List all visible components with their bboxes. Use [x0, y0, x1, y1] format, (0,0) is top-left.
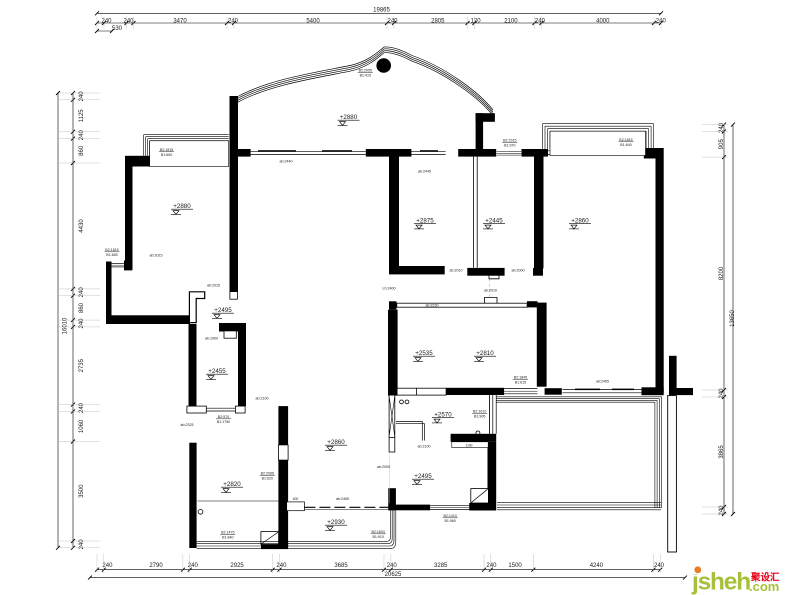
svg-text:240: 240	[123, 18, 134, 24]
svg-text:ab:2010: ab:2010	[450, 269, 463, 273]
svg-text:B2:1475: B2:1475	[221, 531, 234, 535]
svg-text:ab:2440: ab:2440	[280, 160, 293, 164]
svg-text:530: 530	[112, 26, 123, 32]
svg-text:B2:1515: B2:1515	[503, 139, 516, 143]
svg-text:905: 905	[719, 139, 725, 150]
svg-text:B2:1410: B2:1410	[444, 514, 457, 518]
svg-text:2735: 2735	[79, 358, 85, 372]
svg-text:ab:2455: ab:2455	[596, 380, 609, 384]
svg-text:3285: 3285	[434, 563, 448, 569]
svg-text:Lh:2400: Lh:2400	[383, 287, 396, 291]
svg-text:B2:1815: B2:1815	[105, 248, 118, 252]
svg-text:B1:910: B1:910	[373, 535, 384, 539]
svg-text:B1:615: B1:615	[515, 381, 526, 385]
svg-text:ab:2230: ab:2230	[426, 303, 439, 307]
svg-text:ab:1900: ab:1900	[205, 337, 218, 341]
svg-text:5400: 5400	[306, 18, 320, 24]
svg-text:ab:2010: ab:2010	[484, 289, 497, 293]
svg-text:4430: 4430	[79, 219, 85, 233]
svg-text:2925: 2925	[230, 563, 244, 569]
svg-text:B1:970: B1:970	[504, 144, 515, 148]
svg-text:860: 860	[79, 145, 85, 156]
svg-text:2805: 2805	[431, 18, 445, 24]
svg-text:240: 240	[387, 563, 398, 569]
svg-text:ab:2005: ab:2005	[377, 465, 390, 469]
svg-text:ab:2100: ab:2100	[418, 445, 431, 449]
svg-text:B1:640: B1:640	[620, 143, 631, 147]
svg-text:3865: 3865	[719, 445, 725, 459]
svg-text:8200: 8200	[719, 266, 725, 280]
svg-text:.com: .com	[749, 579, 779, 594]
svg-text:B1:840: B1:840	[222, 536, 233, 540]
svg-text:ab:2100: ab:2100	[256, 397, 269, 401]
svg-text:400: 400	[293, 497, 299, 501]
svg-text:240: 240	[102, 563, 113, 569]
svg-text:B2:2055: B2:2055	[359, 69, 372, 73]
svg-text:B1:650: B1:650	[106, 253, 117, 257]
svg-text:B1:415: B1:415	[360, 74, 371, 78]
svg-text:B2:1845: B2:1845	[514, 376, 527, 380]
svg-text:B2:1815: B2:1815	[160, 148, 173, 152]
svg-text:240: 240	[387, 18, 398, 24]
svg-text:4000: 4000	[596, 18, 610, 24]
svg-text:B1:905: B1:905	[474, 415, 485, 419]
svg-text:4240: 4240	[590, 563, 604, 569]
svg-text:B2:1603: B2:1603	[372, 530, 385, 534]
svg-text:240: 240	[276, 563, 287, 569]
svg-text:3470: 3470	[173, 18, 187, 24]
svg-text:16010: 16010	[63, 317, 69, 334]
svg-text:240: 240	[101, 18, 112, 24]
svg-text:ab:2325: ab:2325	[181, 423, 194, 427]
svg-text:B2:1815: B2:1815	[619, 138, 632, 142]
svg-text:ab:2465: ab:2465	[336, 497, 349, 501]
svg-text:1100: 1100	[466, 443, 473, 447]
svg-text:20625: 20625	[385, 572, 402, 578]
svg-text:1125: 1125	[79, 109, 85, 123]
svg-text:ab:2000: ab:2000	[512, 269, 525, 273]
svg-text:3685: 3685	[334, 563, 348, 569]
svg-text:ab:2445: ab:2445	[418, 170, 431, 174]
svg-text:ab:2015: ab:2015	[150, 254, 163, 258]
svg-text:120: 120	[471, 18, 482, 24]
svg-text:B1:620: B1:620	[262, 477, 273, 481]
svg-text:ab:2015: ab:2015	[207, 284, 220, 288]
svg-text:860: 860	[79, 302, 85, 313]
svg-text:240: 240	[228, 18, 239, 24]
svg-text:3500: 3500	[79, 484, 85, 498]
svg-text:19865: 19865	[373, 8, 390, 14]
svg-text:240: 240	[486, 563, 497, 569]
svg-text:240: 240	[535, 18, 546, 24]
svg-text:1060: 1060	[79, 419, 85, 433]
svg-text:B2:570: B2:570	[218, 415, 229, 419]
svg-text:1500: 1500	[508, 563, 522, 569]
svg-text:2100: 2100	[504, 18, 518, 24]
svg-text:240: 240	[188, 563, 199, 569]
svg-text:B2:1610: B2:1610	[473, 410, 486, 414]
svg-text:2790: 2790	[149, 563, 163, 569]
svg-text:B1:650: B1:650	[161, 153, 172, 157]
svg-text:13650: 13650	[730, 309, 736, 326]
svg-text:B2:2066: B2:2066	[261, 472, 274, 476]
svg-text:240: 240	[654, 563, 665, 569]
svg-text:B1:1750: B1:1750	[217, 420, 230, 424]
svg-text:B1:960: B1:960	[445, 519, 456, 523]
